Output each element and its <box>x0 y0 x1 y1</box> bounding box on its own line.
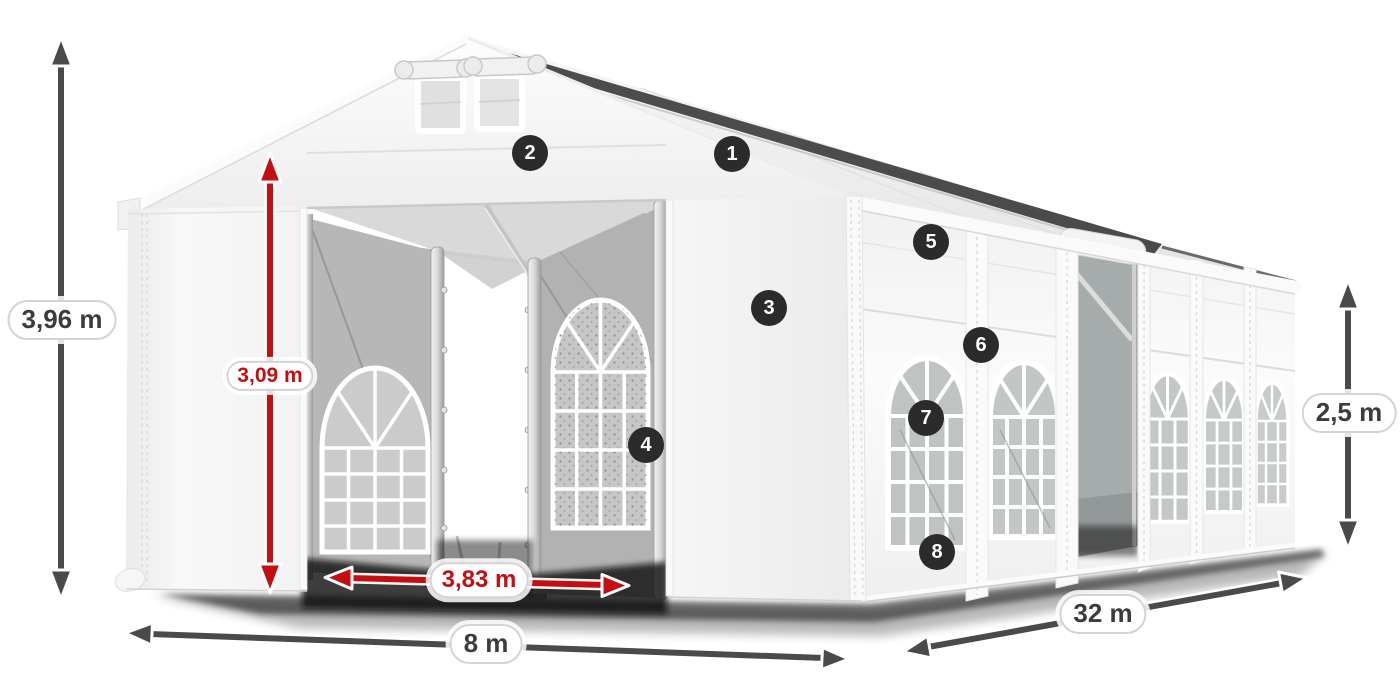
side-window-1 <box>888 358 966 548</box>
label-front-width: 8 m <box>450 624 523 664</box>
label-total-height: 3,96 m <box>8 300 117 340</box>
callout-badge-7: 7 <box>908 400 944 436</box>
callout-badge-4: 4 <box>628 427 664 463</box>
label-entrance-height: 3,09 m <box>226 361 313 391</box>
inner-door-right <box>533 205 665 598</box>
front-gable <box>112 36 866 601</box>
tent-illustration <box>0 0 1400 700</box>
side-window-2 <box>990 362 1058 537</box>
label-side-wall-height: 2,5 m <box>1302 393 1397 433</box>
callout-badge-1: 1 <box>714 136 750 172</box>
front-wall-left <box>126 206 307 590</box>
callout-badge-2: 2 <box>512 135 548 171</box>
side-window-5 <box>1256 383 1288 505</box>
tent-product-diagram: 3,96 m 3,09 m 3,83 m 8 m 32 m 2,5 m 1 2 … <box>0 0 1400 700</box>
tent-interior <box>302 200 667 614</box>
inner-door-left <box>307 218 437 582</box>
front-wall-right <box>666 197 862 601</box>
callout-badge-3: 3 <box>751 290 787 326</box>
corner-strap <box>846 196 866 601</box>
side-window-4 <box>1204 379 1244 512</box>
callout-badge-5: 5 <box>913 224 949 260</box>
label-entrance-width: 3,83 m <box>430 562 529 598</box>
inner-door-right-window <box>553 300 648 528</box>
inner-door-left-window <box>322 368 428 552</box>
side-window-3 <box>1145 374 1190 522</box>
callout-badge-6: 6 <box>963 327 999 363</box>
callout-badge-8: 8 <box>919 534 955 570</box>
label-side-length: 32 m <box>1059 594 1146 634</box>
